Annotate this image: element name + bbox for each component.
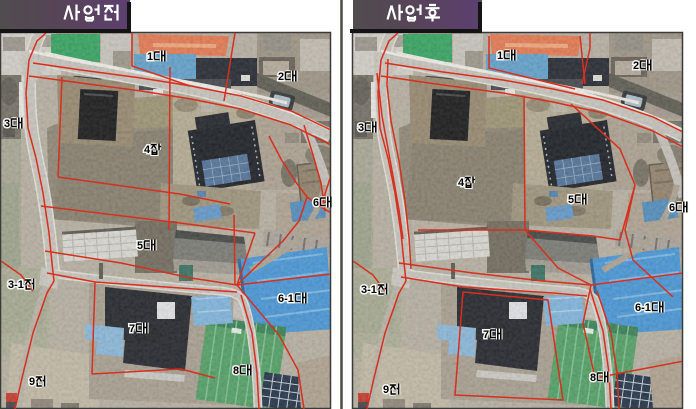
svg-text:3-1: 3-1: [8, 279, 24, 291]
svg-text:4: 4: [458, 177, 465, 189]
svg-text:6: 6: [669, 202, 675, 214]
svg-text:8: 8: [233, 365, 239, 377]
svg-text:9: 9: [383, 384, 389, 396]
svg-text:9: 9: [29, 376, 35, 388]
svg-text:6-1: 6-1: [278, 293, 294, 305]
svg-text:4: 4: [144, 144, 151, 156]
svg-text:6: 6: [313, 197, 319, 209]
svg-text:6-1: 6-1: [635, 302, 651, 314]
svg-text:3: 3: [4, 118, 10, 130]
svg-text:3-1: 3-1: [361, 284, 377, 296]
svg-text:2: 2: [278, 71, 284, 83]
svg-text:5: 5: [568, 194, 574, 206]
svg-text:7: 7: [483, 329, 489, 341]
svg-text:1: 1: [497, 50, 503, 62]
svg-text:8: 8: [590, 372, 596, 384]
svg-text:3: 3: [358, 122, 364, 134]
svg-text:5: 5: [137, 240, 143, 252]
svg-text:1: 1: [147, 51, 153, 63]
svg-text:2: 2: [633, 60, 639, 72]
svg-text:7: 7: [129, 323, 135, 335]
